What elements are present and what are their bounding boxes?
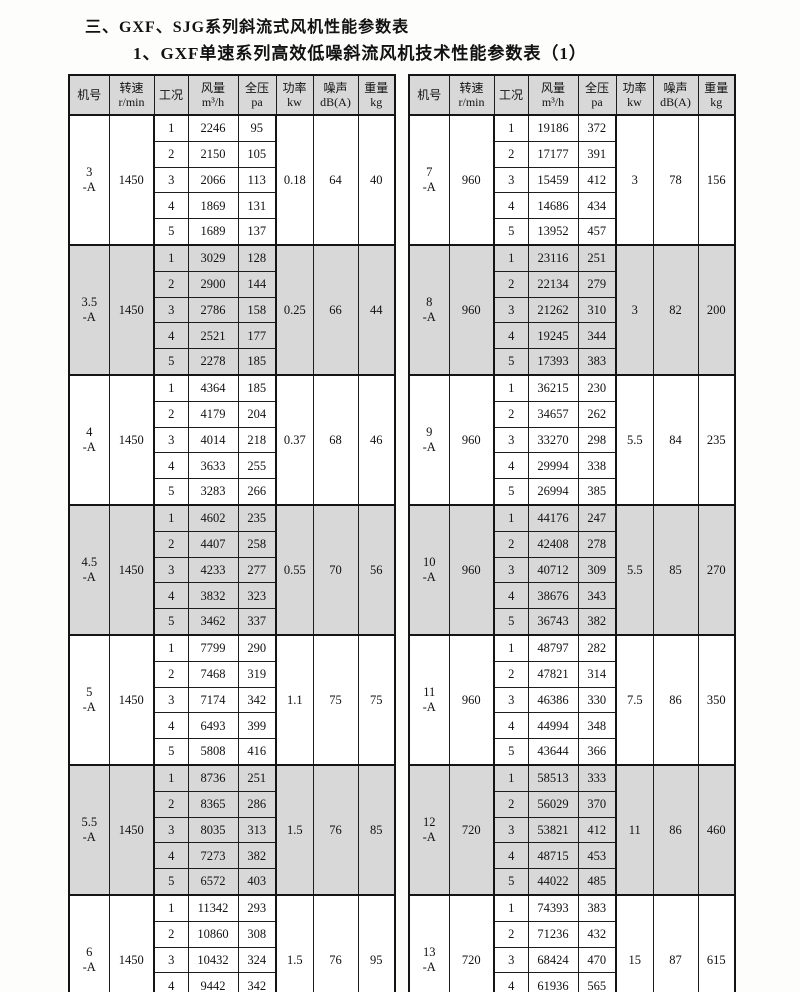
pressure-cell: 298: [578, 427, 616, 453]
air-flow-cell: 5808: [188, 739, 238, 765]
air-flow-cell: 3029: [188, 245, 238, 271]
air-flow-cell: 2066: [188, 167, 238, 193]
pressure-cell: 333: [578, 765, 616, 791]
speed-cell: 1450: [109, 895, 154, 992]
fan-model-cell: 6-A: [69, 895, 109, 992]
condition-no-cell: 2: [494, 401, 528, 427]
power-cell: 5.5: [616, 505, 653, 635]
condition-no-cell: 3: [154, 557, 188, 583]
condition-no-cell: 1: [154, 765, 188, 791]
page-subtitle: 1、GXF单速系列高效低噪斜流风机技术性能参数表（1）: [133, 39, 587, 64]
tables-container: 机号转速r/min工况风量m³/h全压pa功率kw噪声dB(A)重量kg3-A1…: [68, 74, 736, 992]
weight-cell: 40: [358, 115, 395, 245]
air-flow-cell: 74393: [528, 895, 578, 921]
speed-cell: 720: [449, 765, 494, 895]
air-flow-cell: 4233: [188, 557, 238, 583]
power-cell: 5.5: [616, 375, 653, 505]
weight-cell: 235: [698, 375, 735, 505]
air-flow-cell: 48715: [528, 843, 578, 869]
pressure-cell: 278: [578, 531, 616, 557]
fan-model-cell: 13-A: [409, 895, 449, 992]
air-flow-cell: 7174: [188, 687, 238, 713]
pressure-cell: 485: [578, 869, 616, 895]
condition-no-cell: 4: [154, 453, 188, 479]
speed-cell: 1450: [109, 245, 154, 375]
condition-no-cell: 1: [154, 375, 188, 401]
pressure-cell: 310: [578, 297, 616, 323]
condition-no-cell: 5: [494, 479, 528, 505]
column-header: 全压pa: [578, 75, 616, 115]
fan-model-cell: 11-A: [409, 635, 449, 765]
pressure-cell: 218: [238, 427, 276, 453]
weight-cell: 44: [358, 245, 395, 375]
column-header: 风量m³/h: [188, 75, 238, 115]
air-flow-cell: 7273: [188, 843, 238, 869]
speed-cell: 960: [449, 115, 494, 245]
pressure-cell: 255: [238, 453, 276, 479]
column-header: 重量kg: [698, 75, 735, 115]
condition-no-cell: 1: [154, 115, 188, 141]
air-flow-cell: 17393: [528, 349, 578, 375]
air-flow-cell: 3633: [188, 453, 238, 479]
air-flow-cell: 4179: [188, 401, 238, 427]
pressure-cell: 251: [238, 765, 276, 791]
pressure-cell: 131: [238, 193, 276, 219]
air-flow-cell: 53821: [528, 817, 578, 843]
condition-no-cell: 2: [154, 661, 188, 687]
condition-no-cell: 5: [154, 219, 188, 245]
table-row: 12-A7201585133331186460: [409, 765, 735, 791]
pressure-cell: 105: [238, 141, 276, 167]
pressure-cell: 330: [578, 687, 616, 713]
pressure-cell: 412: [578, 817, 616, 843]
condition-no-cell: 4: [494, 843, 528, 869]
pressure-cell: 338: [578, 453, 616, 479]
air-flow-cell: 2521: [188, 323, 238, 349]
pressure-cell: 204: [238, 401, 276, 427]
weight-cell: 56: [358, 505, 395, 635]
pressure-cell: 314: [578, 661, 616, 687]
condition-no-cell: 1: [494, 375, 528, 401]
air-flow-cell: 6493: [188, 713, 238, 739]
air-flow-cell: 44022: [528, 869, 578, 895]
weight-cell: 350: [698, 635, 735, 765]
condition-no-cell: 2: [154, 401, 188, 427]
pressure-cell: 113: [238, 167, 276, 193]
power-cell: 1.5: [276, 765, 313, 895]
air-flow-cell: 4364: [188, 375, 238, 401]
condition-no-cell: 4: [154, 323, 188, 349]
pressure-cell: 95: [238, 115, 276, 141]
pressure-cell: 251: [578, 245, 616, 271]
fan-model-cell: 4-A: [69, 375, 109, 505]
condition-no-cell: 3: [154, 687, 188, 713]
pressure-cell: 177: [238, 323, 276, 349]
pressure-cell: 185: [238, 349, 276, 375]
condition-no-cell: 3: [154, 817, 188, 843]
condition-no-cell: 3: [154, 427, 188, 453]
pressure-cell: 308: [238, 921, 276, 947]
pressure-cell: 128: [238, 245, 276, 271]
fan-model-cell: 12-A: [409, 765, 449, 895]
condition-no-cell: 3: [494, 817, 528, 843]
pressure-cell: 344: [578, 323, 616, 349]
column-header: 机号: [69, 75, 109, 115]
air-flow-cell: 3462: [188, 609, 238, 635]
table-row: 8-A960123116251382200: [409, 245, 735, 271]
power-cell: 3: [616, 245, 653, 375]
column-header: 工况: [154, 75, 188, 115]
column-header: 风量m³/h: [528, 75, 578, 115]
air-flow-cell: 2246: [188, 115, 238, 141]
power-cell: 11: [616, 765, 653, 895]
pressure-cell: 158: [238, 297, 276, 323]
speed-cell: 1450: [109, 375, 154, 505]
pressure-cell: 391: [578, 141, 616, 167]
pressure-cell: 286: [238, 791, 276, 817]
power-cell: 0.25: [276, 245, 313, 375]
weight-cell: 85: [358, 765, 395, 895]
air-flow-cell: 4407: [188, 531, 238, 557]
noise-cell: 85: [653, 505, 698, 635]
condition-no-cell: 3: [154, 167, 188, 193]
table-row: 10-A9601441762475.585270: [409, 505, 735, 531]
fan-model-cell: 10-A: [409, 505, 449, 635]
speed-cell: 960: [449, 375, 494, 505]
pressure-cell: 185: [238, 375, 276, 401]
fan-model-cell: 3-A: [69, 115, 109, 245]
air-flow-cell: 22134: [528, 271, 578, 297]
noise-cell: 75: [313, 635, 358, 765]
air-flow-cell: 29994: [528, 453, 578, 479]
air-flow-cell: 68424: [528, 947, 578, 973]
condition-no-cell: 4: [154, 843, 188, 869]
condition-no-cell: 5: [494, 609, 528, 635]
condition-no-cell: 4: [494, 193, 528, 219]
column-header: 工况: [494, 75, 528, 115]
power-cell: 0.37: [276, 375, 313, 505]
condition-no-cell: 4: [154, 973, 188, 992]
condition-no-cell: 4: [154, 713, 188, 739]
pressure-cell: 366: [578, 739, 616, 765]
weight-cell: 95: [358, 895, 395, 992]
power-cell: 0.18: [276, 115, 313, 245]
fan-model-cell: 8-A: [409, 245, 449, 375]
speed-cell: 1450: [109, 115, 154, 245]
condition-no-cell: 5: [494, 739, 528, 765]
condition-no-cell: 1: [494, 635, 528, 661]
condition-no-cell: 3: [154, 297, 188, 323]
condition-no-cell: 3: [494, 557, 528, 583]
weight-cell: 615: [698, 895, 735, 992]
condition-no-cell: 2: [154, 531, 188, 557]
condition-no-cell: 1: [154, 635, 188, 661]
air-flow-cell: 7799: [188, 635, 238, 661]
pressure-cell: 348: [578, 713, 616, 739]
air-flow-cell: 36215: [528, 375, 578, 401]
document-page: 三、GXF、SJG系列斜流式风机性能参数表 1、GXF单速系列高效低噪斜流风机技…: [0, 0, 800, 992]
noise-cell: 78: [653, 115, 698, 245]
power-cell: 3: [616, 115, 653, 245]
power-cell: 7.5: [616, 635, 653, 765]
air-flow-cell: 17177: [528, 141, 578, 167]
air-flow-cell: 38676: [528, 583, 578, 609]
air-flow-cell: 6572: [188, 869, 238, 895]
pressure-cell: 342: [238, 973, 276, 992]
fan-model-cell: 9-A: [409, 375, 449, 505]
condition-no-cell: 3: [494, 427, 528, 453]
air-flow-cell: 10432: [188, 947, 238, 973]
air-flow-cell: 1689: [188, 219, 238, 245]
air-flow-cell: 61936: [528, 973, 578, 992]
air-flow-cell: 33270: [528, 427, 578, 453]
condition-no-cell: 1: [494, 245, 528, 271]
air-flow-cell: 2150: [188, 141, 238, 167]
air-flow-cell: 34657: [528, 401, 578, 427]
weight-cell: 200: [698, 245, 735, 375]
speed-cell: 960: [449, 635, 494, 765]
pressure-cell: 309: [578, 557, 616, 583]
weight-cell: 75: [358, 635, 395, 765]
column-header: 转速r/min: [109, 75, 154, 115]
table-row: 5.5-A1450187362511.57685: [69, 765, 395, 791]
pressure-cell: 382: [238, 843, 276, 869]
pressure-cell: 137: [238, 219, 276, 245]
fan-model-cell: 4.5-A: [69, 505, 109, 635]
pressure-cell: 290: [238, 635, 276, 661]
condition-no-cell: 4: [494, 973, 528, 992]
condition-no-cell: 1: [494, 115, 528, 141]
condition-no-cell: 3: [494, 687, 528, 713]
air-flow-cell: 46386: [528, 687, 578, 713]
fan-performance-table-left: 机号转速r/min工况风量m³/h全压pa功率kw噪声dB(A)重量kg3-A1…: [68, 74, 396, 992]
pressure-cell: 293: [238, 895, 276, 921]
condition-no-cell: 1: [494, 505, 528, 531]
performance-table-left: 机号转速r/min工况风量m³/h全压pa功率kw噪声dB(A)重量kg3-A1…: [68, 74, 396, 992]
pressure-cell: 385: [578, 479, 616, 505]
pressure-cell: 399: [238, 713, 276, 739]
pressure-cell: 282: [578, 635, 616, 661]
pressure-cell: 313: [238, 817, 276, 843]
air-flow-cell: 2900: [188, 271, 238, 297]
condition-no-cell: 5: [494, 869, 528, 895]
performance-table-right: 机号转速r/min工况风量m³/h全压pa功率kw噪声dB(A)重量kg7-A9…: [408, 74, 736, 992]
condition-no-cell: 5: [154, 609, 188, 635]
column-header: 全压pa: [238, 75, 276, 115]
condition-no-cell: 5: [154, 869, 188, 895]
pressure-cell: 565: [578, 973, 616, 992]
column-header: 机号: [409, 75, 449, 115]
air-flow-cell: 8736: [188, 765, 238, 791]
pressure-cell: 403: [238, 869, 276, 895]
table-row: 13-A7201743933831587615: [409, 895, 735, 921]
condition-no-cell: 2: [494, 791, 528, 817]
noise-cell: 82: [653, 245, 698, 375]
air-flow-cell: 36743: [528, 609, 578, 635]
condition-no-cell: 4: [494, 583, 528, 609]
air-flow-cell: 19245: [528, 323, 578, 349]
air-flow-cell: 11342: [188, 895, 238, 921]
table-row: 5-A1450177992901.17575: [69, 635, 395, 661]
table-row: 3.5-A1450130291280.256644: [69, 245, 395, 271]
fan-model-cell: 5.5-A: [69, 765, 109, 895]
table-row: 7-A960119186372378156: [409, 115, 735, 141]
pressure-cell: 266: [238, 479, 276, 505]
air-flow-cell: 56029: [528, 791, 578, 817]
pressure-cell: 382: [578, 609, 616, 635]
air-flow-cell: 8035: [188, 817, 238, 843]
pressure-cell: 372: [578, 115, 616, 141]
air-flow-cell: 40712: [528, 557, 578, 583]
weight-cell: 460: [698, 765, 735, 895]
air-flow-cell: 10860: [188, 921, 238, 947]
pressure-cell: 324: [238, 947, 276, 973]
air-flow-cell: 23116: [528, 245, 578, 271]
column-header: 噪声dB(A): [313, 75, 358, 115]
condition-no-cell: 1: [494, 895, 528, 921]
power-cell: 1.5: [276, 895, 313, 992]
noise-cell: 76: [313, 895, 358, 992]
pressure-cell: 343: [578, 583, 616, 609]
speed-cell: 1450: [109, 765, 154, 895]
condition-no-cell: 4: [494, 323, 528, 349]
air-flow-cell: 42408: [528, 531, 578, 557]
condition-no-cell: 5: [494, 219, 528, 245]
pressure-cell: 457: [578, 219, 616, 245]
air-flow-cell: 26994: [528, 479, 578, 505]
air-flow-cell: 43644: [528, 739, 578, 765]
air-flow-cell: 19186: [528, 115, 578, 141]
air-flow-cell: 9442: [188, 973, 238, 992]
noise-cell: 76: [313, 765, 358, 895]
pressure-cell: 262: [578, 401, 616, 427]
condition-no-cell: 1: [154, 895, 188, 921]
pressure-cell: 235: [238, 505, 276, 531]
column-header: 噪声dB(A): [653, 75, 698, 115]
condition-no-cell: 2: [154, 141, 188, 167]
pressure-cell: 323: [238, 583, 276, 609]
pressure-cell: 247: [578, 505, 616, 531]
air-flow-cell: 8365: [188, 791, 238, 817]
air-flow-cell: 2786: [188, 297, 238, 323]
condition-no-cell: 3: [494, 297, 528, 323]
air-flow-cell: 7468: [188, 661, 238, 687]
condition-no-cell: 1: [154, 245, 188, 271]
air-flow-cell: 4014: [188, 427, 238, 453]
air-flow-cell: 3283: [188, 479, 238, 505]
pressure-cell: 258: [238, 531, 276, 557]
condition-no-cell: 2: [494, 921, 528, 947]
noise-cell: 68: [313, 375, 358, 505]
condition-no-cell: 1: [494, 765, 528, 791]
speed-cell: 1450: [109, 505, 154, 635]
condition-no-cell: 5: [154, 349, 188, 375]
air-flow-cell: 4602: [188, 505, 238, 531]
air-flow-cell: 14686: [528, 193, 578, 219]
table-row: 4.5-A1450146022350.557056: [69, 505, 395, 531]
table-row: 4-A1450143641850.376846: [69, 375, 395, 401]
condition-no-cell: 2: [154, 921, 188, 947]
speed-cell: 720: [449, 895, 494, 992]
pressure-cell: 453: [578, 843, 616, 869]
table-row: 11-A9601487972827.586350: [409, 635, 735, 661]
fan-model-cell: 7-A: [409, 115, 449, 245]
fan-model-cell: 5-A: [69, 635, 109, 765]
condition-no-cell: 3: [494, 947, 528, 973]
column-header: 功率kw: [616, 75, 653, 115]
condition-no-cell: 2: [154, 271, 188, 297]
pressure-cell: 383: [578, 349, 616, 375]
power-cell: 15: [616, 895, 653, 992]
pressure-cell: 412: [578, 167, 616, 193]
pressure-cell: 319: [238, 661, 276, 687]
noise-cell: 66: [313, 245, 358, 375]
page-title: 三、GXF、SJG系列斜流式风机性能参数表: [85, 13, 409, 37]
pressure-cell: 432: [578, 921, 616, 947]
condition-no-cell: 4: [154, 583, 188, 609]
air-flow-cell: 48797: [528, 635, 578, 661]
noise-cell: 86: [653, 635, 698, 765]
condition-no-cell: 5: [154, 479, 188, 505]
fan-model-cell: 3.5-A: [69, 245, 109, 375]
table-header-row: 机号转速r/min工况风量m³/h全压pa功率kw噪声dB(A)重量kg: [409, 75, 735, 115]
noise-cell: 86: [653, 765, 698, 895]
column-header: 转速r/min: [449, 75, 494, 115]
pressure-cell: 416: [238, 739, 276, 765]
speed-cell: 960: [449, 245, 494, 375]
column-header: 重量kg: [358, 75, 395, 115]
speed-cell: 960: [449, 505, 494, 635]
power-cell: 1.1: [276, 635, 313, 765]
air-flow-cell: 44176: [528, 505, 578, 531]
air-flow-cell: 3832: [188, 583, 238, 609]
condition-no-cell: 3: [494, 167, 528, 193]
condition-no-cell: 4: [494, 453, 528, 479]
air-flow-cell: 21262: [528, 297, 578, 323]
weight-cell: 270: [698, 505, 735, 635]
air-flow-cell: 71236: [528, 921, 578, 947]
noise-cell: 64: [313, 115, 358, 245]
pressure-cell: 370: [578, 791, 616, 817]
condition-no-cell: 3: [154, 947, 188, 973]
condition-no-cell: 2: [494, 661, 528, 687]
air-flow-cell: 15459: [528, 167, 578, 193]
air-flow-cell: 13952: [528, 219, 578, 245]
condition-no-cell: 4: [494, 713, 528, 739]
pressure-cell: 277: [238, 557, 276, 583]
air-flow-cell: 44994: [528, 713, 578, 739]
noise-cell: 70: [313, 505, 358, 635]
weight-cell: 156: [698, 115, 735, 245]
table-row: 9-A9601362152305.584235: [409, 375, 735, 401]
weight-cell: 46: [358, 375, 395, 505]
column-header: 功率kw: [276, 75, 313, 115]
air-flow-cell: 58513: [528, 765, 578, 791]
pressure-cell: 383: [578, 895, 616, 921]
condition-no-cell: 2: [494, 271, 528, 297]
condition-no-cell: 2: [494, 141, 528, 167]
noise-cell: 84: [653, 375, 698, 505]
condition-no-cell: 2: [494, 531, 528, 557]
air-flow-cell: 2278: [188, 349, 238, 375]
pressure-cell: 279: [578, 271, 616, 297]
table-header-row: 机号转速r/min工况风量m³/h全压pa功率kw噪声dB(A)重量kg: [69, 75, 395, 115]
power-cell: 0.55: [276, 505, 313, 635]
fan-performance-table-right: 机号转速r/min工况风量m³/h全压pa功率kw噪声dB(A)重量kg7-A9…: [408, 74, 736, 992]
condition-no-cell: 4: [154, 193, 188, 219]
noise-cell: 87: [653, 895, 698, 992]
pressure-cell: 230: [578, 375, 616, 401]
